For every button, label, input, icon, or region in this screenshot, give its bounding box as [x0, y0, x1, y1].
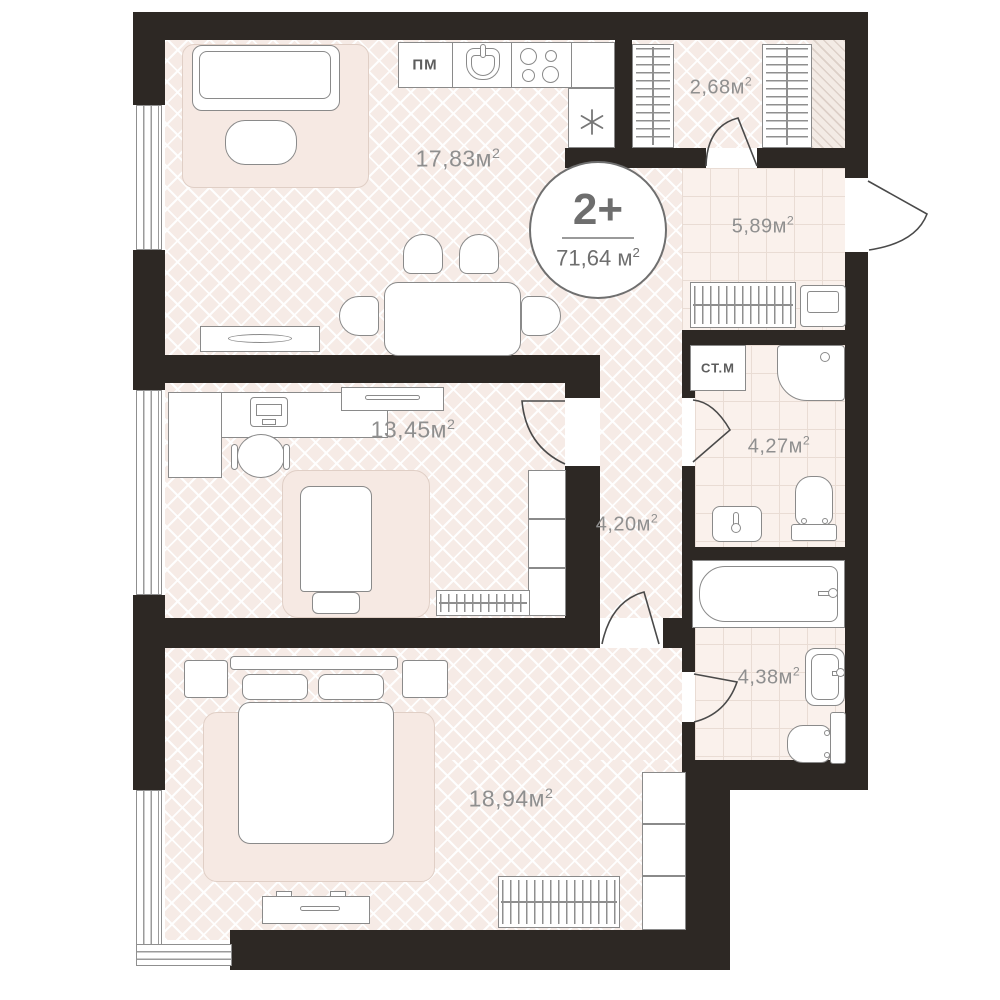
wall-bedroom-small-right-top — [565, 355, 600, 398]
bedroom-master-door-opening — [600, 618, 663, 648]
stove-burner-icon — [520, 48, 537, 65]
bathroom-tub-door-opening — [682, 672, 695, 722]
double-bed-mattress — [238, 702, 394, 844]
nightstand-right — [402, 660, 448, 698]
room-label-corridor: 4,20м2 — [596, 512, 659, 537]
dresser-handle — [365, 395, 420, 400]
dresser-foot — [330, 891, 346, 897]
desk-chair — [237, 434, 285, 478]
single-bed-footboard — [312, 592, 360, 614]
window-corner-frame — [136, 944, 232, 966]
bathroom2-sink-basin — [811, 654, 839, 700]
bathroom-shower-door-opening — [682, 398, 695, 466]
kitchen-faucet-icon — [480, 44, 486, 58]
dresser-foot — [276, 891, 292, 897]
counter-cell — [571, 42, 615, 88]
hall-coat-rack — [690, 282, 796, 328]
vent-shaft — [812, 40, 845, 148]
sofa-seat — [199, 51, 331, 99]
bedroom-small-door-opening — [565, 398, 600, 466]
shower-drain-icon — [820, 352, 830, 362]
washing-machine-label: СТ.М — [701, 361, 735, 376]
rack-rail — [652, 47, 653, 145]
wall-between-bathrooms — [682, 547, 845, 560]
sink-faucet-icon — [731, 523, 741, 533]
window-bedroom-master — [136, 790, 162, 950]
double-bed-headboard — [230, 656, 398, 670]
wall-wardrobe-left — [615, 40, 632, 148]
wall-bedroom-small-right-bottom — [565, 466, 600, 618]
rack-small-bedroom — [436, 590, 530, 616]
shower-tray — [777, 345, 845, 401]
dining-chair — [403, 234, 443, 274]
toilet-tank — [791, 524, 837, 541]
coffee-table — [225, 120, 297, 165]
nightstand-left — [184, 660, 228, 698]
badge-divider — [562, 237, 634, 239]
wardrobe-cabinet — [528, 519, 566, 568]
stove-burner-icon — [542, 66, 559, 83]
wall-left-pier-1 — [133, 40, 165, 105]
dining-chair — [459, 234, 499, 274]
toilet2-tank — [830, 712, 846, 764]
wardrobe-cabinet — [642, 876, 686, 930]
rack-rail — [439, 602, 527, 603]
rack-rail — [501, 901, 617, 902]
rack-rail — [786, 47, 787, 145]
wall-bathrooms-left-3 — [682, 722, 695, 760]
room-label-wardrobe: 2,68м2 — [690, 75, 753, 100]
fridge-cell — [568, 88, 615, 148]
room-label-bedroom-small: 13,45м2 — [371, 417, 456, 444]
wardrobe-cabinet — [642, 772, 686, 824]
floor-plan: 17,83м2 2,68м2 5,89м2 4,27м2 13,45м2 4,2… — [0, 0, 1000, 1000]
wall-wardrobe-bottom-right — [757, 148, 868, 168]
desk-chair-armrest — [231, 444, 238, 470]
wardrobe-rack-left — [632, 44, 674, 148]
toilet-hinge-icon — [801, 518, 807, 524]
desk-chair-armrest — [283, 444, 290, 470]
wardrobe-cabinet — [528, 568, 566, 616]
room-label-entry-hall: 5,89м2 — [732, 214, 795, 239]
stove-cell — [511, 42, 572, 88]
room-label-bedroom-master: 18,94м2 — [469, 786, 554, 813]
dresser-handle — [300, 906, 340, 911]
badge-total-area: 71,64 м2 — [556, 245, 640, 271]
toilet-hinge-icon — [824, 752, 830, 758]
wardrobe-door-opening — [706, 148, 757, 168]
wall-top — [133, 12, 868, 40]
pillow — [242, 674, 308, 700]
dining-chair — [521, 296, 561, 336]
wall-master-right — [685, 790, 730, 940]
wardrobe-cabinet — [528, 470, 566, 519]
desk-monitor-stand — [262, 419, 276, 425]
wall-hall-bathroom — [682, 330, 868, 345]
tv-icon — [228, 334, 292, 343]
wall-between-bedrooms — [165, 618, 600, 648]
apartment-badge: 2+ 71,64 м2 — [529, 161, 667, 299]
single-bed-mattress — [300, 486, 372, 592]
window-bedroom-small — [136, 390, 162, 595]
rack-master-bedroom — [498, 876, 620, 928]
stove-burner-icon — [545, 50, 557, 62]
window-living — [136, 105, 162, 250]
wall-bottom — [230, 930, 730, 970]
rack-rail — [693, 304, 793, 305]
sink-faucet-icon — [836, 668, 845, 677]
toilet-hinge-icon — [822, 518, 828, 524]
room-label-bathroom-tub: 4,38м2 — [738, 665, 801, 690]
entrance-door-opening — [845, 178, 868, 252]
wardrobe-rack-right — [762, 44, 812, 148]
dining-chair — [339, 296, 379, 336]
entrance-door-arc — [868, 181, 927, 250]
wall-left-pier-2 — [133, 250, 165, 390]
dining-table — [384, 282, 521, 356]
wall-left-pier-3 — [133, 595, 165, 790]
badge-rooms-count: 2+ — [573, 188, 623, 232]
dishwasher-label: ПМ — [412, 57, 437, 74]
shoe-bench-top — [807, 291, 839, 313]
wall-living-bedroom — [165, 355, 600, 383]
stove-burner-icon — [522, 69, 535, 82]
desk-return — [168, 392, 222, 478]
room-label-living-kitchen: 17,83м2 — [416, 146, 501, 173]
toilet-hinge-icon — [824, 730, 830, 736]
bathtub-faucet-icon — [828, 588, 838, 598]
wall-bathroom-bottom — [682, 760, 868, 790]
room-label-bathroom-shower: 4,27м2 — [748, 434, 811, 459]
wardrobe-cabinet — [642, 824, 686, 876]
desk-monitor-screen — [256, 404, 282, 416]
pillow — [318, 674, 384, 700]
